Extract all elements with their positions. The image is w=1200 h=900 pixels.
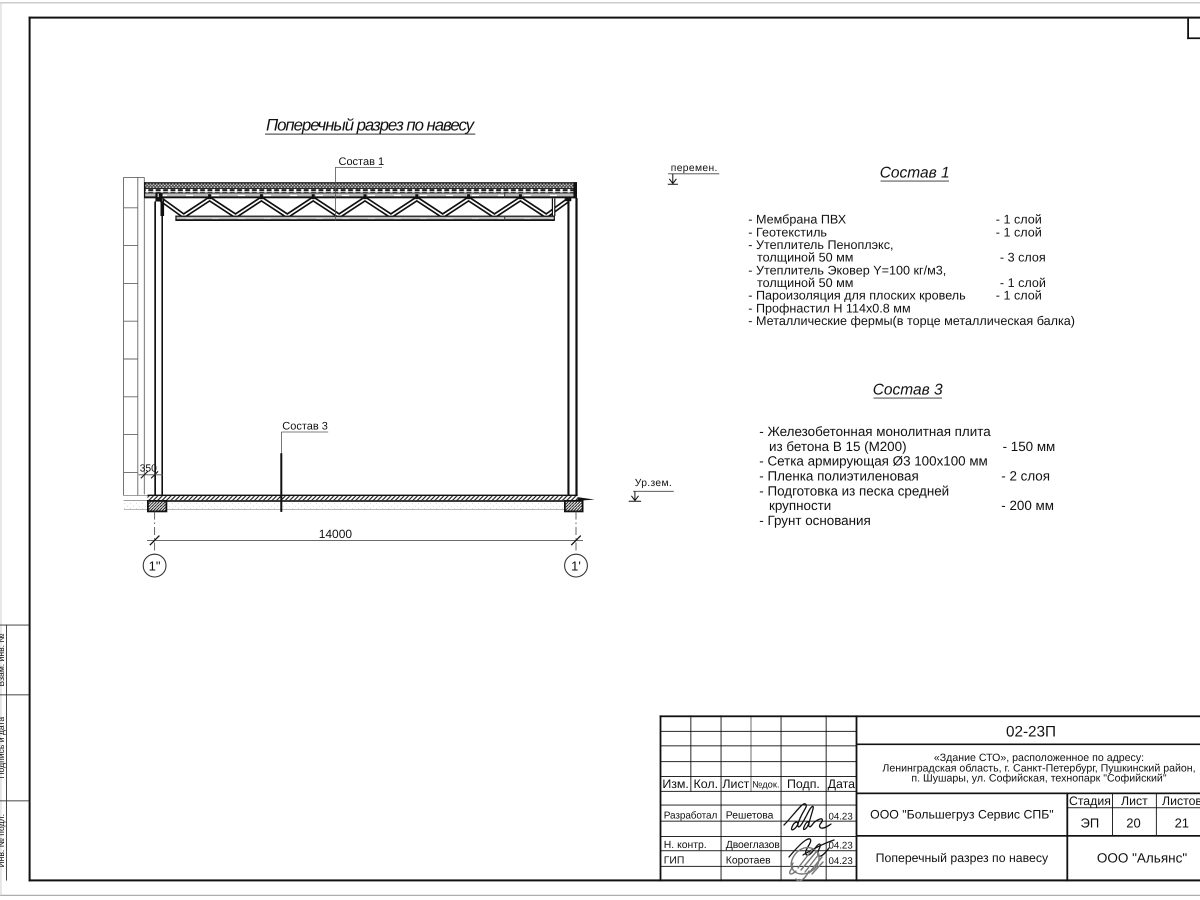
svg-text:- 1 слой: - 1 слой [996,225,1042,239]
svg-text:Дата: Дата [828,777,856,791]
svg-text:- 2 слоя: - 2 слоя [1001,469,1050,484]
svg-text:- 200 мм: - 200 мм [1001,498,1054,513]
svg-text:Подп.: Подп. [787,777,820,791]
svg-text:- 150 мм: - 150 мм [1003,439,1056,454]
svg-text:- Сетка армирующая Ø3 100х100: - Сетка армирующая Ø3 100х100 мм [759,454,987,469]
svg-text:Состав 3: Состав 3 [282,421,328,433]
svg-text:перемен.: перемен. [671,163,718,174]
svg-text:04.23: 04.23 [828,841,852,852]
svg-text:ЭП: ЭП [1081,815,1100,830]
svg-text:Взам. инв. №: Взам. инв. № [0,633,6,686]
svg-text:ГИП: ГИП [664,855,685,866]
svg-text:- Железобетонная монолитная п: - Железобетонная монолитная плита [759,424,991,439]
svg-text:№док.: №док. [752,780,779,790]
svg-text:02-23П: 02-23П [1006,723,1056,740]
svg-text:Разработал: Разработал [664,810,718,821]
svg-text:- Грунт основания: - Грунт основания [759,513,870,528]
svg-text:1': 1' [571,558,581,573]
svg-text:- Пленка полиэтиленовая: - Пленка полиэтиленовая [759,469,918,484]
svg-text:ООО "Большегруз Сервис СПБ": ООО "Большегруз Сервис СПБ" [870,807,1053,821]
svg-text:- Подготовка из песка средней: - Подготовка из песка средней [759,483,949,498]
svg-text:Решетова: Решетова [726,810,774,821]
svg-text:Кол.: Кол. [694,777,719,791]
svg-text:04.23: 04.23 [828,856,852,867]
svg-text:Ур.зем.: Ур.зем. [635,478,672,489]
svg-text:Поперечный разрез по навесу: Поперечный разрез по навесу [266,116,476,135]
svg-text:Поперечный разрез по навесу: Поперечный разрез по навесу [876,851,1049,865]
svg-text:20: 20 [1126,815,1140,830]
svg-text:из бетона В 15 (М200): из бетона В 15 (М200) [769,439,907,454]
svg-text:- Металлические фермы(в торце: - Металлические фермы(в торце металличес… [748,314,1075,328]
svg-text:1": 1" [149,558,161,573]
svg-text:Листов: Листов [1162,794,1200,808]
svg-text:- 1 слой: - 1 слой [996,289,1042,303]
svg-text:Состав 1: Состав 1 [880,164,950,181]
svg-text:Инв. № подл.: Инв. № подл. [0,814,6,868]
svg-text:- 3 слоя: - 3 слоя [1000,251,1046,265]
svg-text:п. Шушары, ул. Софийская, техн: п. Шушары, ул. Софийская, технопарк "Соф… [911,773,1166,785]
svg-text:Состав 1: Состав 1 [339,156,385,168]
svg-text:Стадия: Стадия [1069,794,1111,808]
svg-text:Коротаев: Коротаев [726,855,771,866]
svg-text:14000: 14000 [319,527,353,541]
svg-text:Н. контр.: Н. контр. [664,840,707,851]
svg-text:Изм.: Изм. [662,777,689,791]
svg-text:Состав 3: Состав 3 [873,381,943,398]
svg-text:Двоеглазов: Двоеглазов [726,840,780,851]
svg-text:крупности: крупности [769,498,831,513]
svg-text:Лист: Лист [722,777,749,791]
svg-text:21: 21 [1175,815,1189,830]
svg-text:ООО "Альянс": ООО "Альянс" [1097,850,1187,865]
svg-text:Лист: Лист [1121,794,1148,808]
svg-text:Подпись и дата: Подпись и дата [0,717,6,779]
svg-text:350: 350 [140,464,157,475]
svg-text:04.23: 04.23 [828,811,852,822]
